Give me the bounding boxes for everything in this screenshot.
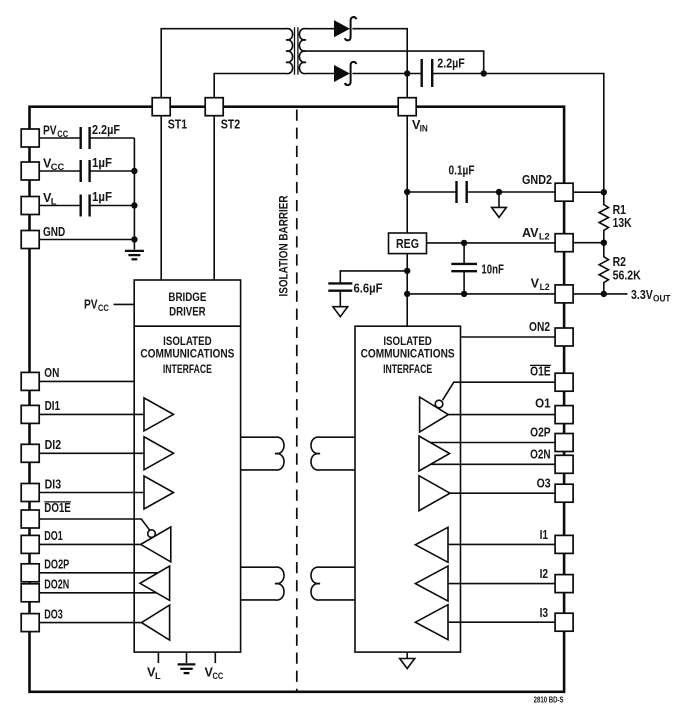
svg-text:R2: R2 — [613, 255, 626, 269]
svg-text:ST1: ST1 — [168, 118, 188, 132]
svg-text:I1: I1 — [540, 528, 549, 542]
svg-text:L: L — [51, 197, 57, 207]
svg-text:I2: I2 — [540, 567, 549, 581]
svg-text:DI1: DI1 — [45, 399, 61, 413]
svg-text:CC: CC — [57, 129, 68, 139]
svg-text:COMMUNICATIONS: COMMUNICATIONS — [361, 347, 455, 361]
svg-text:R1: R1 — [613, 203, 626, 217]
svg-text:DO2P: DO2P — [44, 558, 69, 572]
svg-text:13K: 13K — [613, 216, 632, 230]
svg-text:I3: I3 — [540, 606, 549, 620]
svg-text:V: V — [531, 276, 540, 290]
svg-text:ST2: ST2 — [221, 118, 241, 132]
svg-text:1µF: 1µF — [92, 156, 112, 170]
svg-text:DO2N: DO2N — [44, 578, 69, 592]
svg-text:GND: GND — [43, 225, 65, 239]
svg-text:6.6µF: 6.6µF — [354, 282, 383, 296]
svg-text:ISOLATED: ISOLATED — [383, 334, 432, 348]
svg-text:O1E: O1E — [530, 364, 551, 378]
svg-text:DO1E: DO1E — [44, 501, 71, 515]
svg-text:INTERFACE: INTERFACE — [163, 362, 212, 376]
svg-text:INTERFACE: INTERFACE — [383, 362, 432, 376]
svg-text:3.3V: 3.3V — [631, 288, 653, 302]
svg-text:ISOLATION BARRIER: ISOLATION BARRIER — [277, 195, 291, 296]
svg-text:L2: L2 — [539, 232, 550, 242]
svg-text:L: L — [155, 671, 161, 681]
svg-text:2810 BD-S: 2810 BD-S — [534, 696, 565, 705]
svg-text:DI3: DI3 — [45, 477, 62, 491]
svg-text:REG: REG — [396, 237, 419, 251]
svg-text:O2P: O2P — [530, 425, 551, 439]
svg-text:O3: O3 — [537, 476, 551, 490]
svg-text:DI2: DI2 — [45, 438, 62, 452]
svg-text:OUT: OUT — [653, 294, 671, 304]
svg-text:O2N: O2N — [530, 447, 551, 461]
svg-text:ISOLATED: ISOLATED — [163, 334, 212, 348]
svg-text:2.2µF: 2.2µF — [437, 57, 465, 71]
svg-text:L2: L2 — [540, 282, 550, 292]
svg-text:GND2: GND2 — [522, 173, 552, 187]
svg-text:AV: AV — [522, 226, 539, 240]
svg-text:ON: ON — [44, 366, 59, 380]
svg-text:BRIDGE: BRIDGE — [168, 290, 206, 304]
svg-text:CC: CC — [213, 671, 224, 681]
svg-text:2.2µF: 2.2µF — [92, 123, 120, 137]
svg-text:O1: O1 — [535, 397, 551, 411]
svg-text:56.2K: 56.2K — [613, 268, 641, 282]
svg-text:DRIVER: DRIVER — [169, 304, 206, 318]
svg-text:DO1: DO1 — [44, 529, 63, 543]
svg-text:0.1µF: 0.1µF — [449, 164, 475, 178]
svg-text:CC: CC — [51, 162, 65, 172]
svg-text:COMMUNICATIONS: COMMUNICATIONS — [140, 347, 234, 361]
svg-text:IN: IN — [420, 124, 428, 134]
svg-text:PV: PV — [84, 298, 98, 312]
svg-text:1µF: 1µF — [92, 190, 112, 204]
svg-text:CC: CC — [98, 303, 109, 313]
svg-text:10nF: 10nF — [481, 263, 504, 277]
svg-text:DO3: DO3 — [44, 607, 63, 621]
svg-text:PV: PV — [43, 124, 57, 138]
svg-text:ON2: ON2 — [529, 320, 550, 334]
